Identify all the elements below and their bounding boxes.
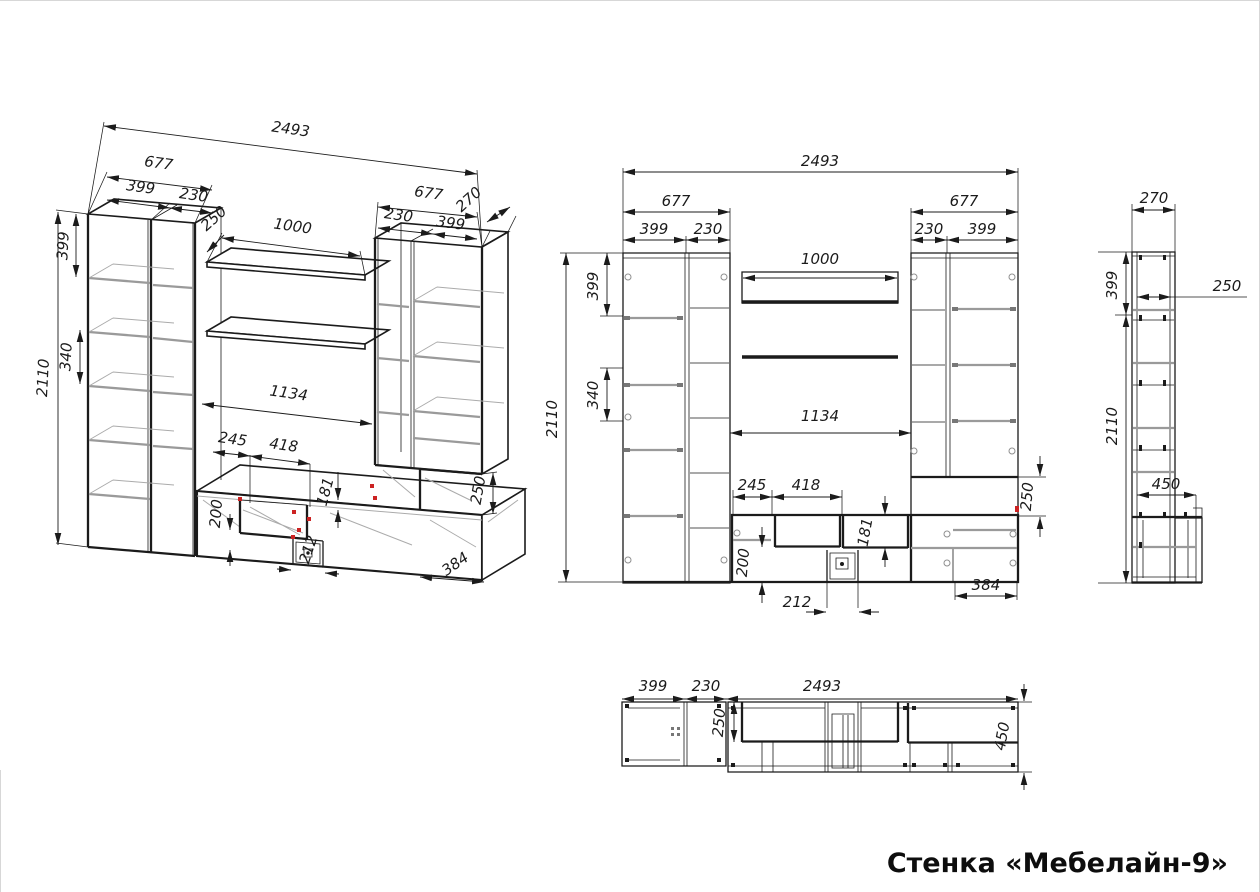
- dim-label: 399: [968, 220, 997, 238]
- blueprint-page: 2493 677 399 230 250 1000 677 230 399 27…: [0, 0, 1260, 892]
- dim-label: 250: [1017, 482, 1037, 512]
- dim-label: 181: [854, 516, 877, 547]
- dim-label: 418: [792, 476, 821, 494]
- dim-label: 200: [733, 548, 753, 578]
- dim-label: 399: [640, 220, 669, 238]
- dim-label: 399: [125, 176, 156, 198]
- dim-label: 2110: [543, 400, 561, 438]
- dim-label: 230: [383, 204, 414, 226]
- dim-label: 399: [639, 677, 668, 695]
- dim-label: 250: [709, 708, 729, 738]
- dim-label: 1000: [273, 214, 313, 237]
- dim-label: 1134: [801, 407, 839, 425]
- dim-label: 245: [738, 476, 767, 494]
- drawing-title: Стенка «Мебелайн-9»: [887, 848, 1228, 879]
- dim-label: 1134: [269, 381, 309, 404]
- dim-label: 250: [1213, 277, 1242, 295]
- dim-label: 245: [217, 428, 248, 450]
- dim-label: 340: [584, 381, 602, 410]
- dim-label: 2110: [33, 358, 53, 397]
- dim-label: 2493: [803, 677, 841, 695]
- dim-label: 399: [1103, 271, 1121, 300]
- dim-label: 450: [991, 720, 1014, 751]
- dim-label: 450: [1152, 475, 1181, 493]
- dim-label: 1000: [801, 250, 839, 268]
- dim-label: 399: [53, 231, 72, 261]
- dim-label: 677: [143, 152, 174, 174]
- dim-label: 200: [206, 499, 226, 529]
- fitting-marks: [625, 704, 1015, 767]
- screw-marks: [1139, 255, 1187, 548]
- dim-label: 230: [694, 220, 723, 238]
- dim-label: 418: [268, 434, 299, 456]
- dim-label: 270: [452, 183, 485, 216]
- dim-label: 399: [584, 272, 602, 301]
- dim-label: 230: [692, 677, 721, 695]
- top-view: 399 230 2493 250 450: [622, 677, 1032, 790]
- dim-label: 677: [662, 192, 691, 210]
- dim-label: 340: [56, 342, 75, 372]
- dim-label: 677: [950, 192, 979, 210]
- isometric-view: 2493 677 399 230 250 1000 677 230 399 27…: [33, 0, 827, 582]
- dim-label: 212: [783, 593, 812, 611]
- dim-label: 230: [915, 220, 944, 238]
- dim-label: 2493: [271, 117, 311, 140]
- dim-label: 230: [178, 184, 209, 206]
- dim-label: 2493: [801, 152, 839, 170]
- side-view: 270 250 399 2110 450: [1098, 189, 1247, 583]
- furniture-drawing: 2493 677 399 230 250 1000 677 230 399 27…: [0, 0, 1260, 892]
- page-edge: [0, 0, 1260, 892]
- dim-label: 677: [413, 182, 444, 204]
- front-view: 2493 677 399 230 677 230 399 1000 1134 2…: [543, 152, 1046, 612]
- dim-label: 384: [972, 576, 1001, 594]
- dim-label: 270: [1140, 189, 1169, 207]
- dim-label: 2110: [1103, 407, 1121, 445]
